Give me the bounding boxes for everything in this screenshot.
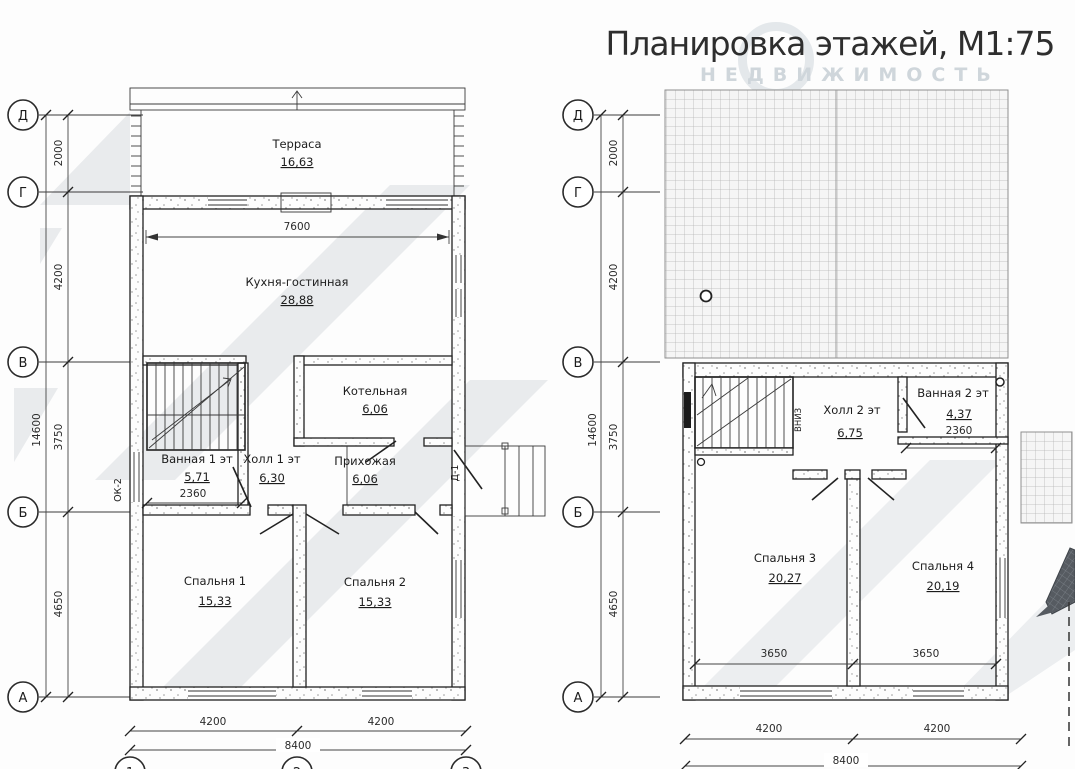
floorplan-sheet: НЕДВИЖИМОСТЬ Планировка этажей, М1:75 [0, 0, 1075, 769]
chimney [701, 291, 712, 302]
axis-label: Б [19, 506, 28, 521]
room-area: 4,37 [946, 407, 972, 421]
dim-total-label: 8400 [833, 755, 860, 767]
room-area: 5,71 [184, 470, 210, 484]
axis-label: В [19, 356, 28, 371]
floor2-axis-rows: Д Г В Б А [563, 100, 660, 712]
floor2-plan: Д Г В Б А 2000 4200 3750 4650 14600 [563, 90, 1075, 769]
room-area: 6,30 [259, 471, 285, 485]
window-mark-label: ОК-2 [113, 478, 124, 502]
room-name: Кухня-гостинная [246, 275, 349, 289]
floor1-roof-edge [130, 88, 465, 110]
room-name: Спальня 2 [344, 575, 406, 589]
dim-label: 4650 [53, 591, 65, 618]
room-name: Спальня 1 [184, 574, 246, 588]
dim-label: 3750 [608, 424, 620, 451]
room-area: 15,33 [359, 595, 392, 609]
axis-label: Б [574, 506, 583, 521]
dim-label: 4200 [756, 723, 783, 735]
room-name: Терраса [271, 137, 321, 151]
door-mark-label: Д-1 [450, 465, 461, 482]
roof-plan [665, 90, 1008, 358]
porch-roof-plan [1021, 432, 1075, 746]
dim-total-label: 14600 [587, 413, 599, 446]
dim-label: 3650 [761, 648, 788, 660]
dim-total-label: 14600 [31, 413, 43, 446]
axis-label: В [574, 356, 583, 371]
dim-label: 4200 [53, 264, 65, 291]
dim-label: 2360 [180, 488, 207, 500]
room-area: 20,27 [769, 571, 802, 585]
room-name: Спальня 3 [754, 551, 816, 565]
room-name: Ванная 1 эт [161, 452, 233, 466]
room-name: Холл 1 эт [243, 452, 301, 466]
room-area: 6,06 [362, 402, 388, 416]
dim-label: 7600 [284, 221, 311, 233]
dim-label: 2000 [608, 140, 620, 167]
axis-label: А [19, 691, 28, 706]
dim-total-label: 8400 [285, 740, 312, 752]
porch-steps [465, 443, 545, 516]
room-area: 16,63 [281, 155, 314, 169]
axis-label: А [574, 691, 583, 706]
room-name: Ванная 2 эт [917, 386, 989, 400]
floor1-axis-cols: 1 2 3 [115, 757, 481, 769]
room-area: 20,19 [927, 579, 960, 593]
room-area: 15,33 [199, 594, 232, 608]
dim-label: 3750 [53, 424, 65, 451]
dim-label: 4650 [608, 591, 620, 618]
room-area: 6,75 [837, 426, 863, 440]
dim-label: 2360 [946, 425, 973, 437]
drawing-title: Планировка этажей, М1:75 [600, 24, 1060, 63]
floor1-bottom-dims: 4200 4200 8400 [125, 716, 471, 755]
dim-label: 4200 [200, 716, 227, 728]
dim-label: 4200 [608, 264, 620, 291]
room-name: Спальня 4 [912, 559, 974, 573]
stairs-direction-label: ВНИЗ [794, 408, 804, 432]
vent [996, 378, 1004, 386]
floor2-bottom-dims: 4200 4200 8400 [680, 723, 1026, 769]
room-name: Прихожая [334, 454, 396, 468]
room-area: 28,88 [281, 293, 314, 307]
dim-label: 2000 [53, 140, 65, 167]
room-name: Холл 2 эт [823, 403, 881, 417]
axis-label: Г [19, 186, 27, 201]
floor2-vertical-dims: 2000 4200 3750 4650 14600 [587, 110, 628, 702]
axis-label: Д [18, 109, 28, 124]
dim-label: 4200 [368, 716, 395, 728]
dim-label: 3650 [913, 648, 940, 660]
dim-label: 4200 [924, 723, 951, 735]
terrace-railing [131, 110, 464, 196]
axis-label: Г [574, 186, 582, 201]
room-area: 6,06 [352, 472, 378, 486]
axis-label: Д [573, 109, 583, 124]
room-name: Котельная [343, 384, 408, 398]
floorplan-canvas: Д Г В Б А 2000 4200 3750 4650 14600 [0, 0, 1075, 769]
staircase-floor2 [695, 377, 793, 466]
